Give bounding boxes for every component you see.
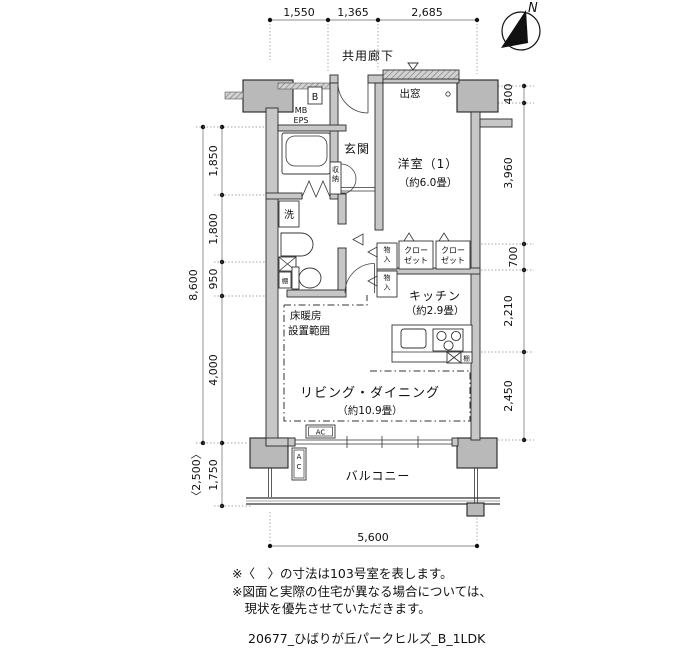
plan-id-footer: 20677_ひばりが丘パークヒルズ_B_1LDK [248,631,486,646]
wall-bath-bottom-left [266,193,302,199]
wall-top-b [368,75,383,83]
kitchen: キッチン （約2.9畳） 棚 [392,289,472,363]
wall-bedroom-top [383,79,459,83]
kitchen-size: （約2.9畳） [406,304,465,317]
dimension-top: 1,550 1,365 2,685 [268,6,479,74]
dim-bottom-label: 5,600 [357,531,389,544]
wall-genkan-west [330,83,338,162]
compass-icon: N [501,1,540,50]
dim-top-1: 1,550 [283,6,315,19]
toilet-tank [292,267,299,289]
wall-washroom-east-upper [338,194,346,224]
note-line-2: ※図面と実際の住宅が異なる場合については、 [232,584,492,599]
ld-door [345,264,375,294]
balcony-label: バルコニー [346,469,411,483]
closet2-door-swing [439,233,449,241]
dimension-right: 400 3,960 700 2,210 2,450 [481,84,534,443]
baywindow-label: 出窓 [400,87,421,100]
wall-washroom-east-lower [338,248,346,290]
window-symbol-icon [446,92,450,96]
washbasin [281,233,313,256]
dim-top-3: 2,685 [411,6,443,19]
shunou-label: 収納 [332,166,339,183]
floorplan-page: 1,550 1,365 2,685 共用廊下 N 8,600 1,850 1,8… [0,0,700,650]
genkan-label: 玄関 [344,141,370,156]
floorheating-label-1: 床暖房 [290,309,322,322]
toilet-bowl [299,268,321,288]
monoire1-door-swing [368,247,377,257]
dim-left-4: 4,000 [207,354,220,386]
kitchen-name: キッチン [409,289,461,303]
wall-bath-top [278,125,346,131]
ac-living-label: AC [316,429,326,437]
closet2-label-1: クロー [441,246,465,255]
floorplan-drawing: 1,550 1,365 2,685 共用廊下 N 8,600 1,850 1,8… [0,0,700,650]
eps-label: EPS [294,116,309,125]
wall-corridor-south [287,290,346,297]
note-line-1: ※〈 〉の寸法は103号室を表します。 [232,566,453,581]
dim-right-2: 3,960 [502,157,515,189]
dim-right-5: 2,450 [502,380,515,412]
bathroom [282,133,330,197]
shelf-label: 棚 [282,276,289,285]
dim-left-3: 950 [207,269,220,290]
closet1-door-swing [404,233,414,241]
note-line-3: 現状を優先させていただきます。 [232,601,431,616]
balcony-post [467,503,484,516]
mb-label: MB [295,106,307,115]
washroom-door-swing [353,234,363,245]
wall-left [266,108,278,445]
bathtub [282,133,330,174]
column-bottom-right [457,438,497,468]
dim-balcony-depth: 1,750 [207,459,220,491]
window-end-left [288,438,295,446]
dim-right-4: 2,210 [502,295,515,327]
closet1-label-2: ゼット [404,255,428,265]
dim-right-1: 400 [502,84,515,105]
wall-bedroom-west [375,83,383,230]
front-door-arc [338,83,368,113]
closet2-label-2: ゼット [441,255,465,265]
column-top-right [457,80,498,112]
dim-left-total: 8,600 [187,269,200,301]
wall-right [471,112,480,440]
floorheating-label-2: 設置範囲 [288,324,330,337]
living-dining: リビング・ダイニング （約10.9畳） AC [300,386,440,438]
wall-stub-left [225,92,243,99]
closet1-label-1: クロー [404,246,428,255]
common-corridor-label: 共用廊下 [342,48,394,63]
shunou-door-arcs [341,164,356,194]
living-name: リビング・ダイニング [300,386,440,401]
dim-right-3: 700 [507,247,520,268]
dim-balcony-alt: 〈2,500〉 [190,448,203,502]
bedroom-size: （約6.0畳） [399,176,458,189]
dim-top-2: 1,365 [337,6,369,19]
monoire2-door-swing [368,276,377,286]
living-size: （約10.9畳） [337,404,402,417]
wall-top-a [330,75,338,83]
bedroom: 洋室（1） （約6.0畳） [398,156,459,241]
dimension-bottom: 5,600 [268,512,479,548]
wall-stub-right [480,119,512,127]
washer-label: 洗 [284,209,294,221]
dim-left-2: 1,800 [207,213,220,245]
window-end-right [452,438,458,446]
kitchen-shelf-label: 棚 [463,354,470,363]
meter-box-area: B MB EPS [294,87,322,125]
b-box-label: B [312,92,319,103]
bedroom-name: 洋室（1） [398,156,459,171]
bath-bifold-door [302,181,330,197]
notes: ※〈 〉の寸法は103号室を表します。 ※図面と実際の住宅が異なる場合については… [232,566,492,646]
compass-north-label: N [528,1,538,16]
dim-left-1: 1,850 [207,145,220,177]
level-marker-icon [408,63,418,70]
